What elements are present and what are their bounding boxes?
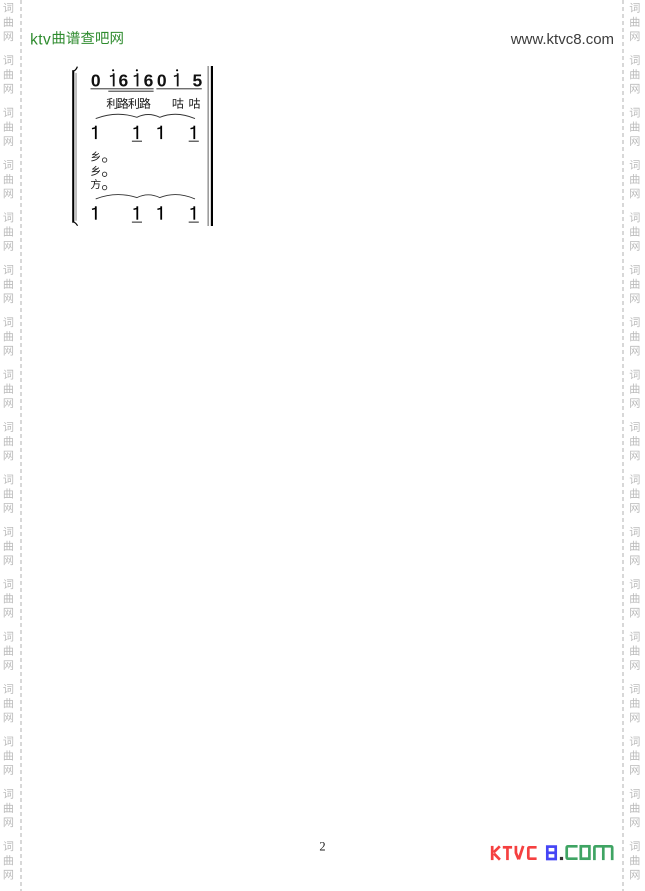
svg-text:ktv: ktv (30, 32, 51, 49)
svg-text:0: 0 (157, 70, 167, 90)
svg-text:5: 5 (193, 70, 203, 90)
svg-text:6: 6 (119, 70, 129, 90)
svg-text:2: 2 (319, 840, 325, 854)
svg-text:6: 6 (144, 70, 154, 90)
svg-text:www.ktvc8.com: www.ktvc8.com (510, 31, 614, 48)
svg-text:0: 0 (91, 70, 101, 90)
